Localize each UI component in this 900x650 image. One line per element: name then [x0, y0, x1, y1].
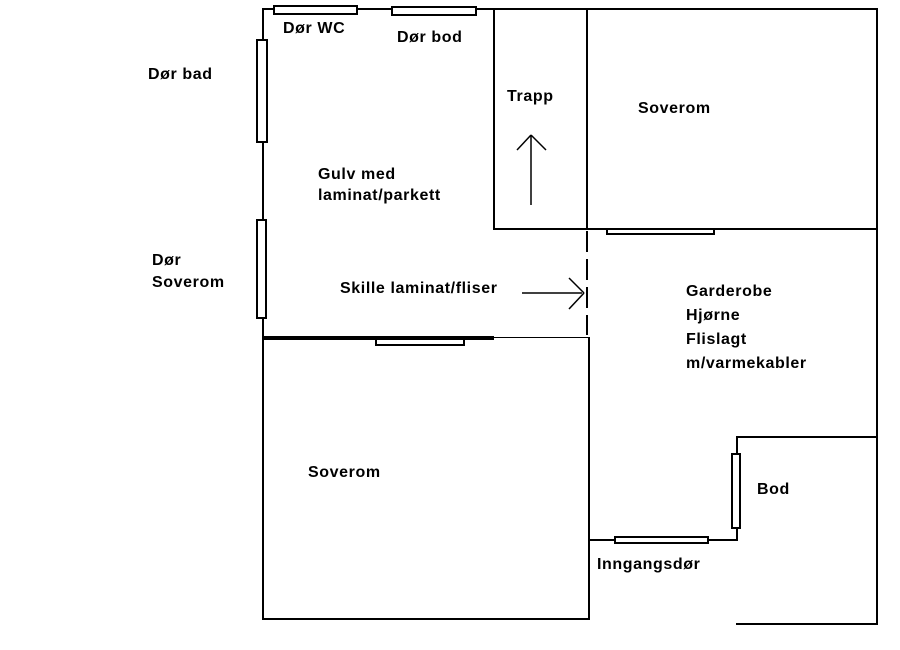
label-inngangsdor: Inngangsdør — [597, 556, 700, 573]
label-garderobe-line3: Flislagt — [686, 328, 807, 352]
label-dor-soverom-line1: Dør — [152, 250, 225, 272]
label-skille: Skille laminat/fliser — [340, 280, 498, 297]
door-marker-wc — [273, 5, 358, 15]
label-gulv-line2: laminat/parkett — [318, 185, 441, 206]
door-marker-soverom-left — [256, 219, 267, 319]
label-dor-bad: Dør bad — [148, 66, 213, 83]
floorplan: Dør WC Dør bod Dør bad Trapp Soverom Gul… — [0, 0, 900, 650]
label-dor-soverom: Dør Soverom — [152, 250, 225, 294]
wall-lower-soverom-top-thin — [493, 337, 590, 338]
label-garderobe-line2: Hjørne — [686, 304, 807, 328]
label-garderobe-line4: m/varmekabler — [686, 352, 807, 376]
label-bod: Bod — [757, 481, 790, 498]
wall-right — [876, 8, 878, 625]
label-soverom-upper: Soverom — [638, 100, 711, 117]
label-trapp: Trapp — [507, 88, 554, 105]
right-arrow-icon — [522, 278, 584, 309]
up-arrow-icon — [517, 135, 546, 205]
door-marker-soverom-lower — [375, 338, 465, 346]
door-marker-bod-side — [731, 453, 741, 529]
label-garderobe: Garderobe Hjørne Flislagt m/varmekabler — [686, 280, 807, 376]
door-marker-garderobe-upper — [606, 228, 715, 235]
wall-bod-top — [736, 436, 878, 438]
label-gulv-line1: Gulv med — [318, 164, 441, 185]
door-marker-bod-top — [391, 6, 477, 16]
label-dor-bod: Dør bod — [397, 29, 463, 46]
wall-bod-bottom — [736, 623, 878, 625]
wall-trapp-left — [493, 8, 495, 230]
wall-lower-soverom-bottom — [262, 618, 590, 620]
door-marker-inngang — [614, 536, 709, 544]
label-dor-wc: Dør WC — [283, 20, 345, 37]
wall-trapp-right-soverom-left — [586, 8, 588, 230]
label-gulv-laminat: Gulv med laminat/parkett — [318, 164, 441, 206]
door-marker-bad — [256, 39, 268, 143]
label-soverom-lower: Soverom — [308, 464, 381, 481]
label-garderobe-line1: Garderobe — [686, 280, 807, 304]
label-dor-soverom-line2: Soverom — [152, 272, 225, 294]
wall-lower-soverom-right — [588, 337, 590, 620]
